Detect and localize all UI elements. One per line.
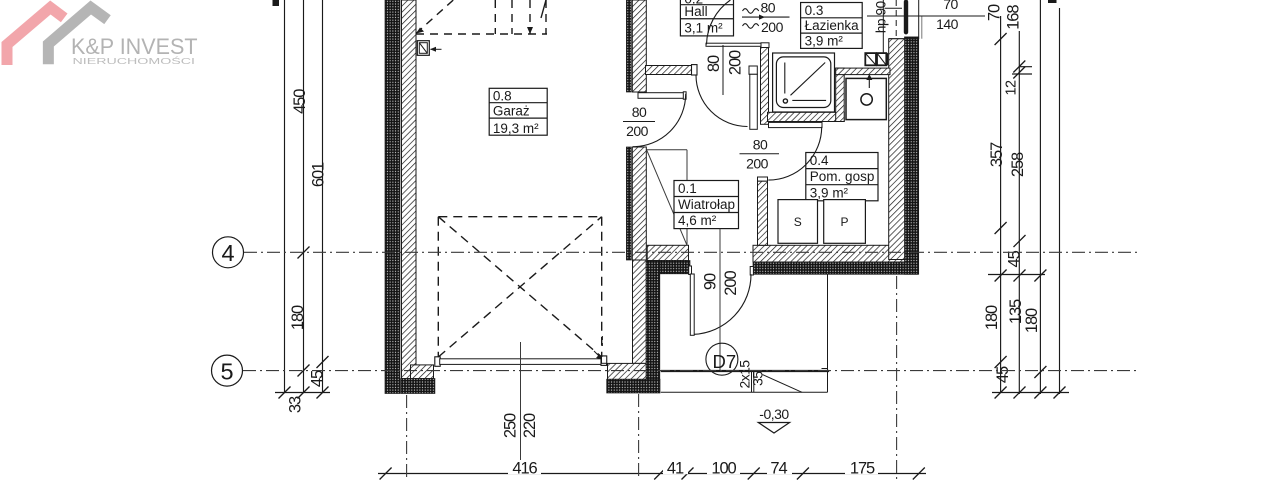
- svg-text:180: 180: [1023, 308, 1041, 333]
- svg-text:Łazienka: Łazienka: [805, 18, 860, 33]
- svg-text:70: 70: [943, 0, 958, 12]
- svg-text:0.8: 0.8: [493, 89, 512, 104]
- svg-text:0.3: 0.3: [805, 3, 824, 18]
- svg-text:45: 45: [309, 370, 327, 387]
- svg-text:19,3 m²: 19,3 m²: [493, 121, 539, 136]
- svg-text:180: 180: [983, 305, 1001, 330]
- svg-text:-0,30: -0,30: [759, 406, 789, 422]
- svg-text:70: 70: [986, 4, 1004, 21]
- svg-text:357: 357: [988, 142, 1006, 167]
- svg-text:5: 5: [220, 358, 233, 384]
- svg-text:3,9 m²: 3,9 m²: [810, 185, 849, 200]
- svg-text:NIERUCHOMOŚCI: NIERUCHOMOŚCI: [73, 55, 196, 66]
- svg-text:45: 45: [994, 366, 1012, 383]
- svg-text:250: 250: [502, 413, 520, 438]
- svg-text:100: 100: [711, 459, 736, 477]
- svg-text:258: 258: [1009, 152, 1027, 177]
- svg-text:80: 80: [761, 0, 776, 15]
- svg-text:200: 200: [626, 123, 649, 139]
- svg-text:450: 450: [291, 89, 309, 114]
- svg-text:4: 4: [221, 240, 234, 266]
- svg-text:74: 74: [770, 459, 787, 477]
- svg-text:Garaż: Garaż: [493, 104, 530, 119]
- svg-text:601: 601: [310, 162, 328, 187]
- svg-text:168: 168: [1004, 5, 1022, 30]
- svg-text:33: 33: [287, 396, 305, 413]
- svg-text:80: 80: [705, 55, 723, 72]
- svg-text:180: 180: [289, 305, 307, 330]
- svg-text:80: 80: [753, 137, 768, 153]
- svg-text:45: 45: [1006, 250, 1024, 267]
- svg-text:3,1 m²: 3,1 m²: [684, 20, 723, 35]
- svg-text:175: 175: [850, 459, 875, 477]
- svg-text:41: 41: [667, 459, 684, 477]
- svg-text:200: 200: [722, 271, 740, 296]
- svg-text:Pom. gosp: Pom. gosp: [810, 169, 875, 184]
- svg-text:200: 200: [727, 50, 745, 75]
- svg-text:80: 80: [632, 104, 647, 120]
- svg-text:S: S: [794, 215, 802, 229]
- svg-text:416: 416: [512, 459, 537, 477]
- svg-text:0.1: 0.1: [678, 181, 697, 196]
- svg-text:140: 140: [936, 16, 959, 32]
- svg-text:200: 200: [761, 19, 784, 35]
- svg-text:4,6 m²: 4,6 m²: [678, 213, 717, 228]
- svg-text:D7: D7: [712, 351, 736, 372]
- svg-text:P: P: [840, 215, 848, 229]
- svg-text:0.4: 0.4: [810, 153, 829, 168]
- svg-text:200: 200: [746, 156, 769, 172]
- svg-text:hp 90: hp 90: [874, 1, 889, 33]
- svg-text:Wiatrołap: Wiatrołap: [678, 197, 735, 212]
- svg-text:90: 90: [702, 273, 720, 290]
- svg-text:Hall: Hall: [684, 4, 707, 19]
- svg-text:220: 220: [521, 413, 539, 438]
- svg-text:3,9 m²: 3,9 m²: [805, 33, 844, 48]
- svg-text:35: 35: [749, 371, 765, 386]
- svg-text:12: 12: [1004, 80, 1020, 95]
